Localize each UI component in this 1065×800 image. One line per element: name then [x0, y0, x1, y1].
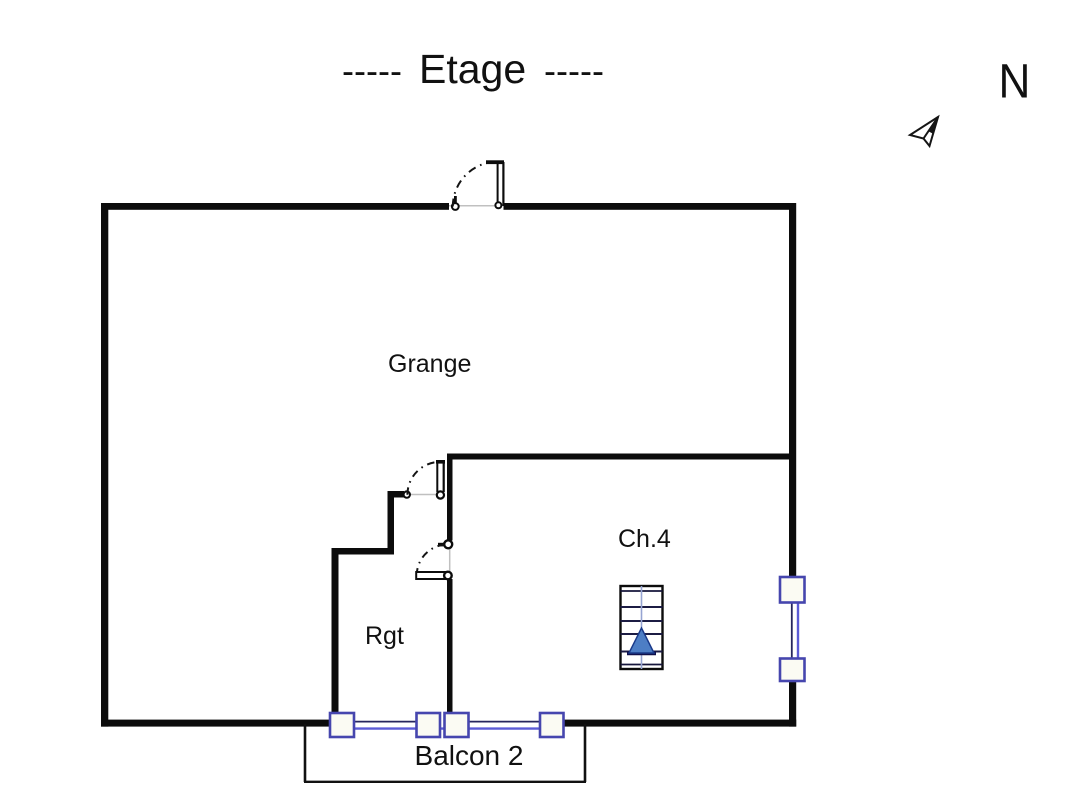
svg-text:-----: ----- — [342, 50, 402, 91]
svg-text:-----: ----- — [544, 50, 604, 91]
svg-text:Etage: Etage — [419, 46, 526, 92]
svg-text:Balcon 2: Balcon 2 — [415, 740, 524, 771]
svg-text:Rgt: Rgt — [365, 622, 404, 650]
svg-text:Grange: Grange — [388, 350, 471, 378]
svg-text:N: N — [999, 54, 1031, 108]
svg-text:Ch.4: Ch.4 — [618, 525, 671, 553]
